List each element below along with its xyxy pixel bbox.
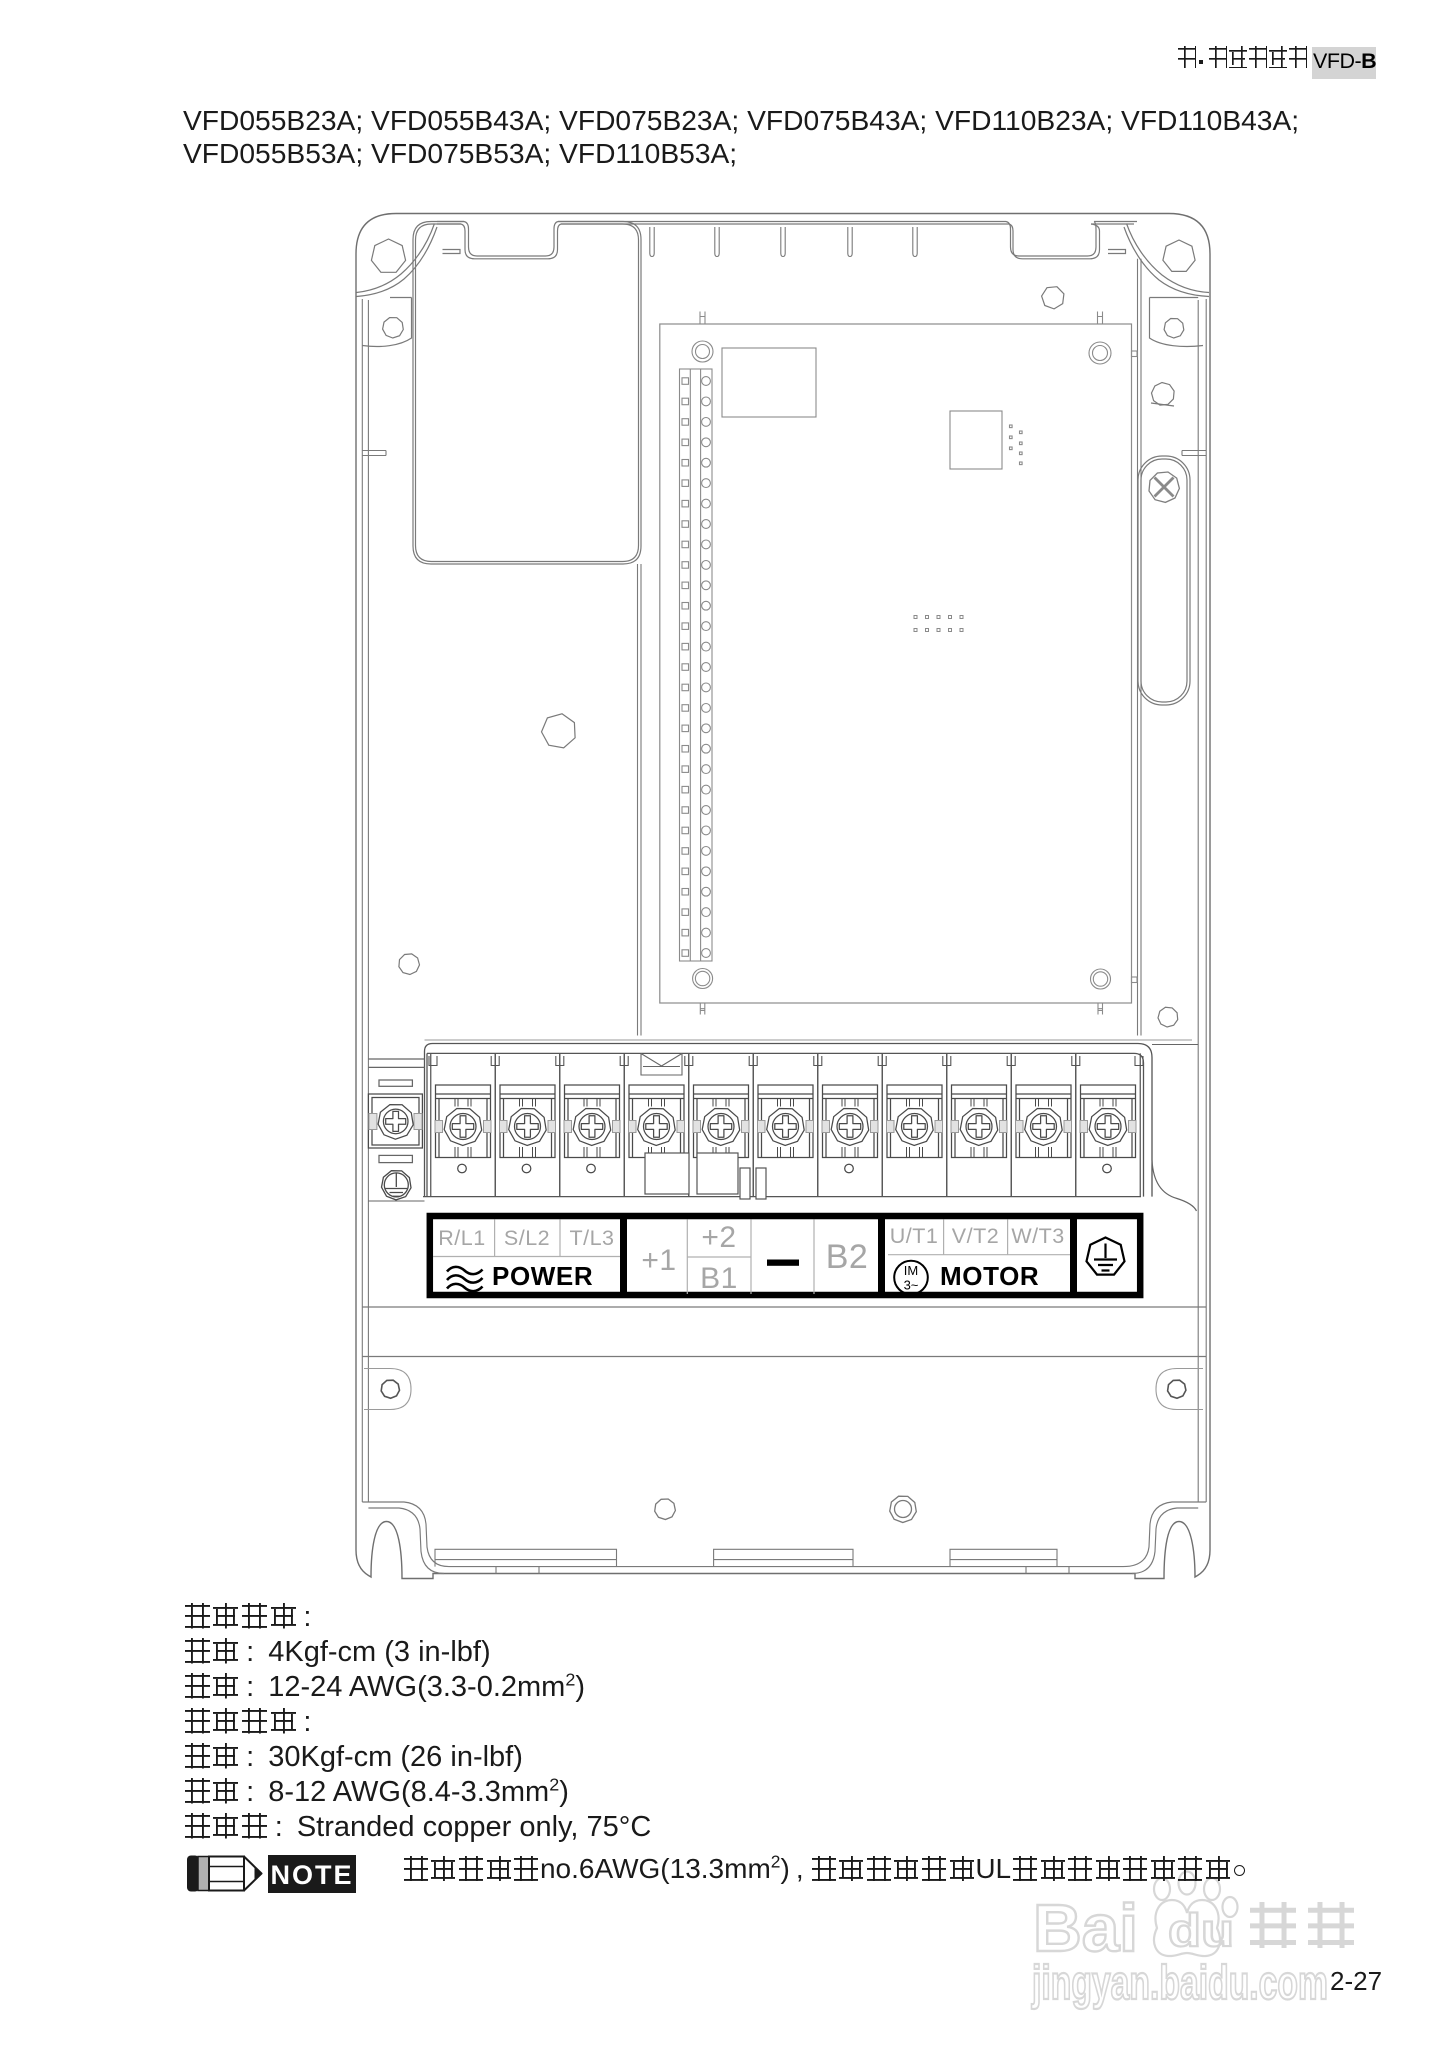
svg-text:R/L1: R/L1 (438, 1226, 485, 1250)
svg-text:V/T2: V/T2 (952, 1224, 999, 1248)
svg-text:W/T3: W/T3 (1011, 1224, 1064, 1248)
svg-text:Bai: Bai (1033, 1891, 1138, 1966)
svg-text:IM: IM (904, 1263, 918, 1278)
svg-text:jingyan.baidu.com: jingyan.baidu.com (1031, 1957, 1328, 2010)
svg-text:U/T1: U/T1 (890, 1224, 939, 1248)
svg-text:S/L2: S/L2 (504, 1226, 550, 1250)
svg-text:3~: 3~ (904, 1278, 919, 1293)
svg-text:T/L3: T/L3 (569, 1226, 614, 1250)
svg-text:+2: +2 (701, 1221, 736, 1254)
svg-text:+1: +1 (641, 1244, 676, 1277)
svg-text:du: du (1168, 1904, 1234, 1956)
svg-text:POWER: POWER (492, 1261, 593, 1291)
svg-text:B1: B1 (700, 1262, 738, 1295)
svg-text:NOTE: NOTE (270, 1860, 353, 1890)
svg-text:MOTOR: MOTOR (940, 1261, 1039, 1291)
svg-text:B2: B2 (826, 1238, 869, 1276)
